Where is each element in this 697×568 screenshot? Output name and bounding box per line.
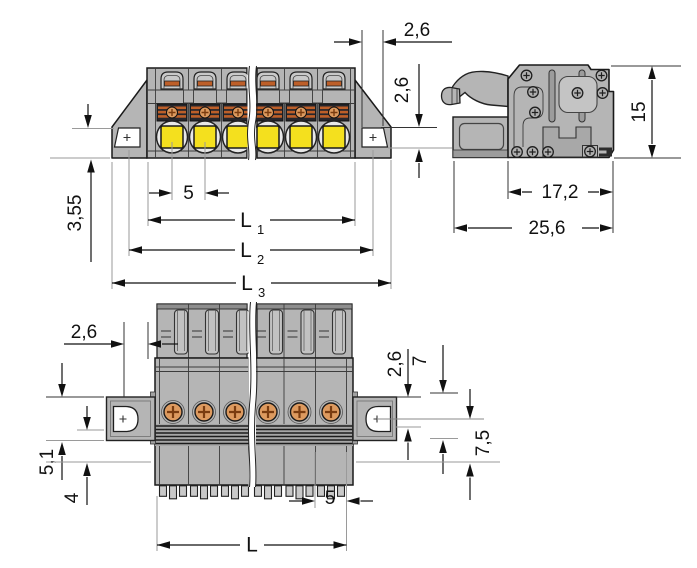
dim-front-l2: L bbox=[240, 239, 252, 262]
bottom-right-flange bbox=[353, 392, 397, 444]
dim-side-depth: 17,2 bbox=[542, 182, 579, 203]
technical-drawing-page: 2,6 2,6 3,55 5 L 1 L 2 L 3 bbox=[0, 0, 697, 568]
teeth bbox=[222, 486, 249, 499]
dim-front-pitch: 5 bbox=[183, 183, 194, 204]
dim-side-total-depth: 25,6 bbox=[529, 218, 566, 239]
dim-front-flange-width: 2,6 bbox=[404, 20, 430, 41]
dim-bottom-offset-top: 2,6 bbox=[385, 351, 406, 377]
dim-front-l3: L bbox=[241, 272, 253, 295]
bottom-break-lines bbox=[249, 302, 257, 487]
side-view bbox=[442, 65, 614, 158]
bottom-left-flange bbox=[107, 392, 156, 444]
terminal-cell bbox=[319, 72, 350, 153]
dim-front-base-height: 3,55 bbox=[65, 195, 86, 232]
bottom-view bbox=[107, 302, 397, 499]
connector-technical-drawing: 2,6 2,6 3,55 5 L 1 L 2 L 3 bbox=[0, 0, 697, 568]
terminal-cell bbox=[157, 72, 188, 153]
dim-side-height: 15 bbox=[629, 101, 650, 122]
dim-bottom-flange-width: 2,6 bbox=[71, 322, 97, 343]
terminal-cell bbox=[190, 72, 221, 153]
terminal-cell bbox=[286, 72, 317, 153]
front-break-lines bbox=[248, 66, 257, 160]
front-right-flange bbox=[362, 128, 388, 147]
dim-front-l1: L bbox=[240, 209, 252, 232]
dim-bottom-offset-left-b: 4 bbox=[62, 492, 83, 503]
front-left-flange bbox=[115, 128, 141, 147]
terminal-cell bbox=[253, 72, 284, 153]
dim-front-l2-sub: 2 bbox=[257, 252, 264, 267]
teeth bbox=[191, 486, 218, 499]
dim-front-flange-thickness: 2,6 bbox=[392, 77, 413, 103]
dim-bottom-depth: 7,5 bbox=[473, 430, 494, 456]
dim-front-l3-sub: 3 bbox=[258, 285, 265, 300]
front-view bbox=[112, 66, 391, 160]
teeth bbox=[255, 486, 282, 499]
teeth bbox=[286, 486, 313, 499]
dim-bottom-length: L bbox=[246, 534, 258, 557]
teeth bbox=[160, 486, 187, 499]
dim-bottom-pitch: 5 bbox=[325, 488, 336, 509]
dim-bottom-offset-seven: 7 bbox=[410, 356, 431, 367]
dim-front-l1-sub: 1 bbox=[257, 222, 264, 237]
